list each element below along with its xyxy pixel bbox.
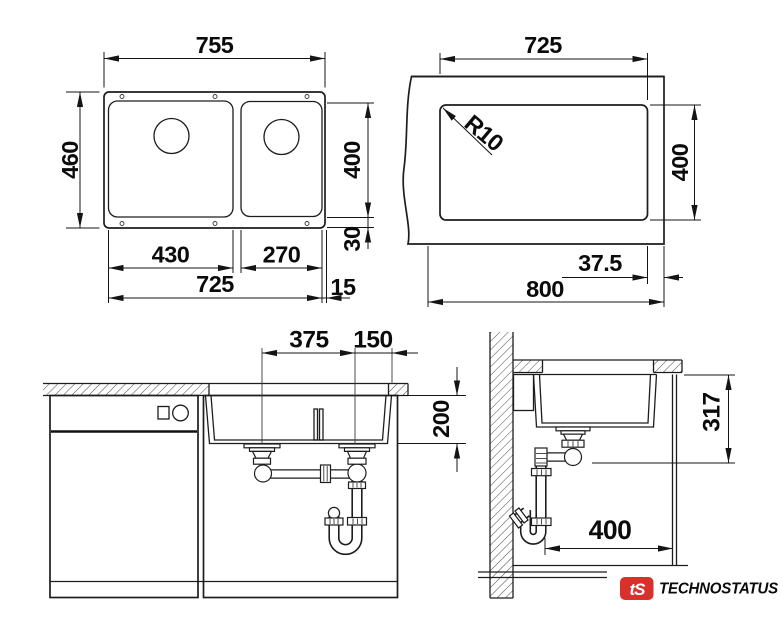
side-countertop bbox=[513, 360, 682, 373]
second-bowl-outline bbox=[241, 102, 322, 217]
dim-label-725-left: 725 bbox=[196, 271, 234, 297]
dim-overall-width: 755 bbox=[104, 32, 325, 88]
right-elbow-ball bbox=[348, 464, 366, 482]
second-bowl-drain bbox=[264, 120, 299, 155]
dim-counter-width: 800 bbox=[428, 246, 664, 307]
dim-bowl-depth: 400 bbox=[327, 103, 374, 218]
left-elbow-ball bbox=[255, 465, 272, 482]
dim-label-800: 800 bbox=[526, 276, 564, 302]
front-plumbing bbox=[244, 444, 375, 550]
dim-label-755: 755 bbox=[196, 32, 234, 58]
dim-cutout-height: 400 bbox=[650, 105, 701, 220]
dim-label-15: 15 bbox=[330, 274, 356, 300]
logo-badge-text: tS bbox=[630, 580, 647, 599]
side-sink-section bbox=[534, 375, 657, 428]
trap-cap bbox=[328, 507, 339, 518]
bowl-divider-wall-left bbox=[314, 409, 318, 440]
side-plumbing bbox=[509, 427, 590, 539]
control-panel-button bbox=[158, 407, 169, 420]
dim-label-317: 317 bbox=[699, 392, 726, 431]
technical-drawing-sheet: 755 460 400 30 430 270 bbox=[0, 0, 783, 640]
dim-inner-width: 725 15 bbox=[109, 271, 356, 300]
front-countertop bbox=[43, 384, 408, 396]
side-view: 317 400 bbox=[478, 332, 735, 598]
left-drain-assembly bbox=[244, 444, 280, 464]
dim-overall-depth: 460 bbox=[57, 92, 100, 228]
wall-section bbox=[490, 332, 513, 598]
right-drain-assembly bbox=[339, 444, 375, 464]
front-sink-section bbox=[206, 396, 392, 444]
side-elbow-ball bbox=[565, 449, 582, 466]
dim-label-200: 200 bbox=[428, 400, 454, 438]
sink-cabinet bbox=[204, 396, 398, 598]
fixing-holes bbox=[120, 95, 309, 226]
dim-label-460: 460 bbox=[57, 141, 83, 179]
dim-label-37-5: 37.5 bbox=[578, 250, 622, 276]
dim-label-430: 430 bbox=[152, 242, 190, 268]
wall-batten bbox=[514, 375, 534, 411]
dim-label-400-top: 400 bbox=[339, 141, 365, 179]
dim-label-400-side: 400 bbox=[589, 515, 632, 545]
dim-label-30: 30 bbox=[339, 226, 365, 252]
cutout-view: R10 725 400 37.5 800 bbox=[403, 32, 701, 307]
radius-callout: R10 bbox=[443, 108, 509, 157]
brand-logo: tS TECHNOSTATUS bbox=[620, 577, 778, 600]
dim-label-725-right: 725 bbox=[524, 32, 562, 58]
logo-wordmark: TECHNOSTATUS bbox=[659, 581, 778, 598]
dim-side-margin: 37.5 bbox=[562, 246, 683, 307]
bowl-divider-wall-right bbox=[320, 409, 324, 440]
dim-cutout-width: 725 bbox=[440, 32, 648, 100]
control-panel-knob bbox=[173, 405, 189, 421]
sink-rim-outline bbox=[104, 92, 325, 228]
front-view: 375 150 200 bbox=[43, 327, 466, 598]
left-cabinet bbox=[50, 396, 198, 598]
dim-rear-clearance: 400 bbox=[545, 515, 673, 555]
dim-label-r10: R10 bbox=[460, 110, 509, 157]
dim-label-270: 270 bbox=[263, 242, 301, 268]
dim-label-400-cutout: 400 bbox=[667, 143, 693, 181]
dim-drain-height: 317 bbox=[592, 375, 735, 463]
dim-bowl-height: 200 bbox=[390, 367, 466, 472]
main-bowl-drain bbox=[154, 119, 189, 154]
sink-installation-diagram: 755 460 400 30 430 270 bbox=[0, 0, 783, 640]
sink-top-view: 755 460 400 30 430 270 bbox=[57, 32, 374, 303]
dim-label-375: 375 bbox=[289, 327, 328, 354]
side-drain-assembly bbox=[556, 427, 590, 447]
dim-rear-margin: 30 bbox=[327, 218, 374, 252]
dim-label-150: 150 bbox=[353, 327, 392, 354]
